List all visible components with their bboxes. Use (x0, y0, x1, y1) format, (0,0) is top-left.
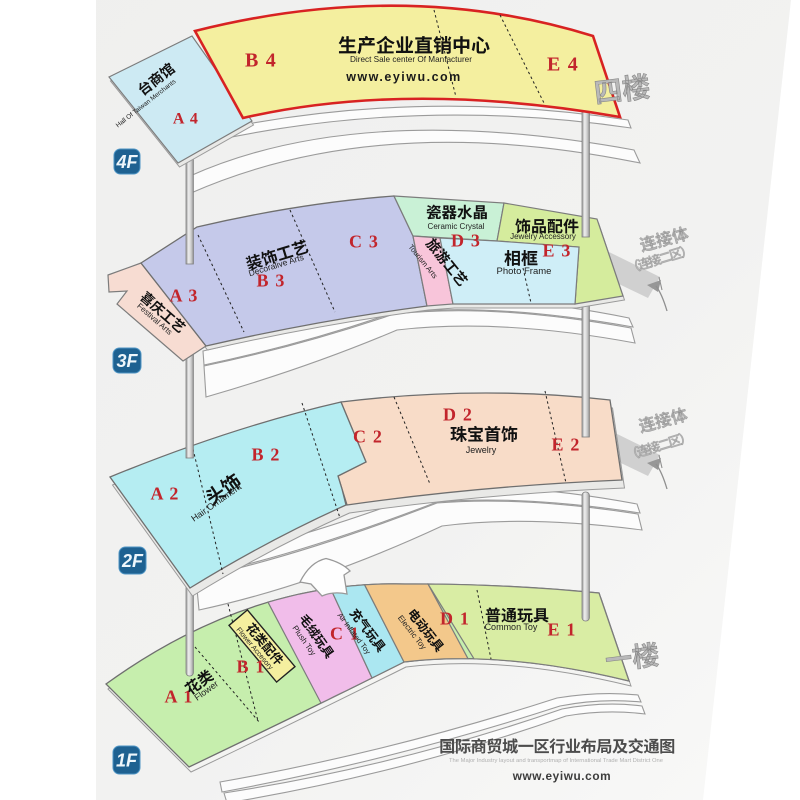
svg-text:E 3: E 3 (542, 241, 571, 261)
svg-text:E 1: E 1 (547, 620, 576, 640)
svg-text:B 1: B 1 (236, 657, 265, 677)
svg-text:C 3: C 3 (349, 232, 379, 252)
svg-text:D 1: D 1 (440, 609, 470, 629)
svg-text:A 4: A 4 (173, 111, 199, 128)
svg-text:4F: 4F (115, 152, 138, 172)
svg-text:The Major Industry layout and: The Major Industry layout and transportm… (449, 758, 663, 764)
svg-text:www.eyiwu.com: www.eyiwu.com (512, 769, 611, 783)
svg-text:www.eyiwu.com: www.eyiwu.com (345, 70, 462, 84)
svg-text:B 3: B 3 (256, 271, 285, 291)
svg-text:B 2: B 2 (251, 445, 280, 465)
svg-text:3F: 3F (116, 351, 138, 371)
svg-text:Direct Sale center Of Manfactu: Direct Sale center Of Manfacturer (350, 55, 472, 64)
svg-text:C 2: C 2 (353, 427, 383, 447)
svg-text:Common Toy: Common Toy (485, 622, 538, 632)
svg-text:B 4: B 4 (245, 50, 277, 72)
svg-text:Photo Frame: Photo Frame (497, 266, 552, 277)
svg-text:D 2: D 2 (443, 405, 473, 425)
svg-text:A 2: A 2 (150, 484, 179, 504)
svg-text:D 3: D 3 (451, 231, 481, 251)
svg-text:E 2: E 2 (551, 435, 580, 455)
svg-text:E 4: E 4 (547, 54, 579, 76)
svg-text:2F: 2F (121, 551, 144, 571)
svg-text:Jewelry: Jewelry (466, 445, 497, 455)
svg-text:1F: 1F (116, 751, 138, 771)
svg-text:A 3: A 3 (169, 286, 198, 306)
